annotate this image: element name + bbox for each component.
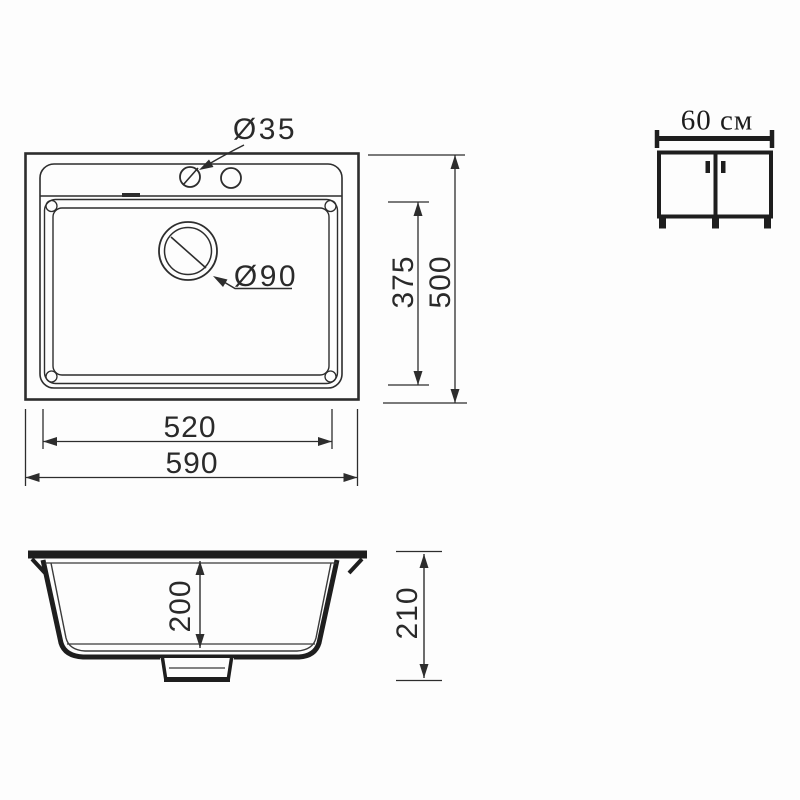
bowl-corner-radius — [325, 371, 336, 382]
cabinet-leg — [764, 217, 771, 229]
arrowhead — [451, 155, 460, 169]
door-handle — [721, 161, 726, 173]
bowl-width-label: 520 — [163, 413, 216, 443]
arrowhead — [26, 473, 40, 482]
door-handle — [706, 161, 711, 173]
cabinet-icon — [655, 130, 774, 229]
sink-dimension-drawing: Ø35 Ø90 375 500 520 590 60 см 200 210 — [0, 0, 800, 800]
cabinet-leg — [659, 217, 666, 229]
arrowhead — [420, 664, 429, 678]
bowl-height-label: 200 — [166, 579, 196, 632]
sink-top-view — [26, 145, 359, 400]
flange-drip-right — [349, 559, 362, 573]
arrowhead — [420, 554, 429, 568]
bowl-corner-radius — [46, 371, 57, 382]
bowl-depth-label: 375 — [389, 255, 419, 308]
bowl-corner-radius — [46, 201, 57, 212]
arrowhead — [451, 389, 460, 403]
arrowhead — [414, 371, 423, 385]
drain-diameter-label: Ø90 — [234, 262, 298, 292]
faucet-hole-diameter-label: Ø35 — [233, 115, 297, 145]
arrowhead — [414, 202, 423, 216]
arrowhead — [213, 276, 228, 287]
sink-outer-edge — [26, 154, 359, 400]
overall-depth-label: 500 — [426, 255, 456, 308]
cabinet-min-width-label: 60 см — [681, 107, 753, 136]
drain-slash — [171, 237, 206, 268]
arrowhead — [43, 437, 57, 446]
arrowhead — [196, 634, 205, 648]
overall-width-label: 590 — [165, 449, 218, 479]
cabinet-leg — [712, 217, 719, 229]
second-hole — [221, 168, 241, 188]
arrowhead — [318, 437, 332, 446]
faucet-hole-slash — [183, 168, 198, 185]
overall-height-label: 210 — [393, 586, 423, 639]
arrowhead — [344, 473, 358, 482]
bowl-corner-radius — [325, 201, 336, 212]
